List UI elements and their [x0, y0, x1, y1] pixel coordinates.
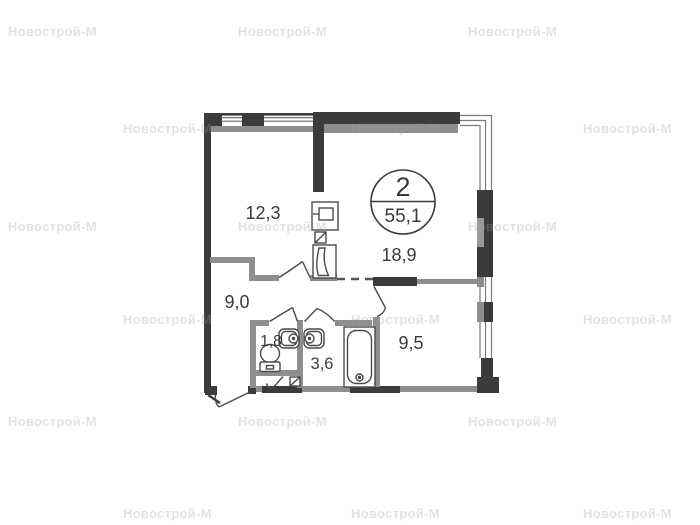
room1-door-arc [279, 262, 310, 278]
floor-plan-page: 2 55,1 12,3 18,9 9,0 1,8 3,6 9,5 Новостр… [0, 0, 700, 525]
bedroom-door-arc [374, 287, 386, 317]
entry-door-arc [215, 392, 250, 407]
bath-door-arc [305, 309, 335, 322]
badge-total-area: 55,1 [385, 206, 422, 227]
wc-door-arc [270, 308, 298, 322]
room-label-bedroom: 9,5 [398, 333, 423, 353]
bathtub [344, 327, 375, 387]
room-label-wc: 1,8 [260, 333, 282, 350]
room-label-bath: 3,6 [311, 355, 334, 373]
vent-shaft-small [315, 232, 326, 243]
kitchen-sink-unit [312, 202, 338, 230]
room-label-hall: 9,0 [224, 292, 249, 312]
sink-right [304, 329, 324, 348]
vent-duct-tall [313, 245, 336, 278]
sink-left [279, 329, 299, 348]
vent-shaft-wc [290, 377, 300, 386]
floor-plan-svg: 2 55,1 12,3 18,9 9,0 1,8 3,6 9,5 [0, 0, 700, 525]
room-label-room1: 12,3 [245, 203, 280, 223]
badge-rooms-count: 2 [395, 172, 410, 202]
apartment-badge: 2 55,1 [371, 170, 435, 234]
room-label-living: 18,9 [381, 245, 416, 265]
